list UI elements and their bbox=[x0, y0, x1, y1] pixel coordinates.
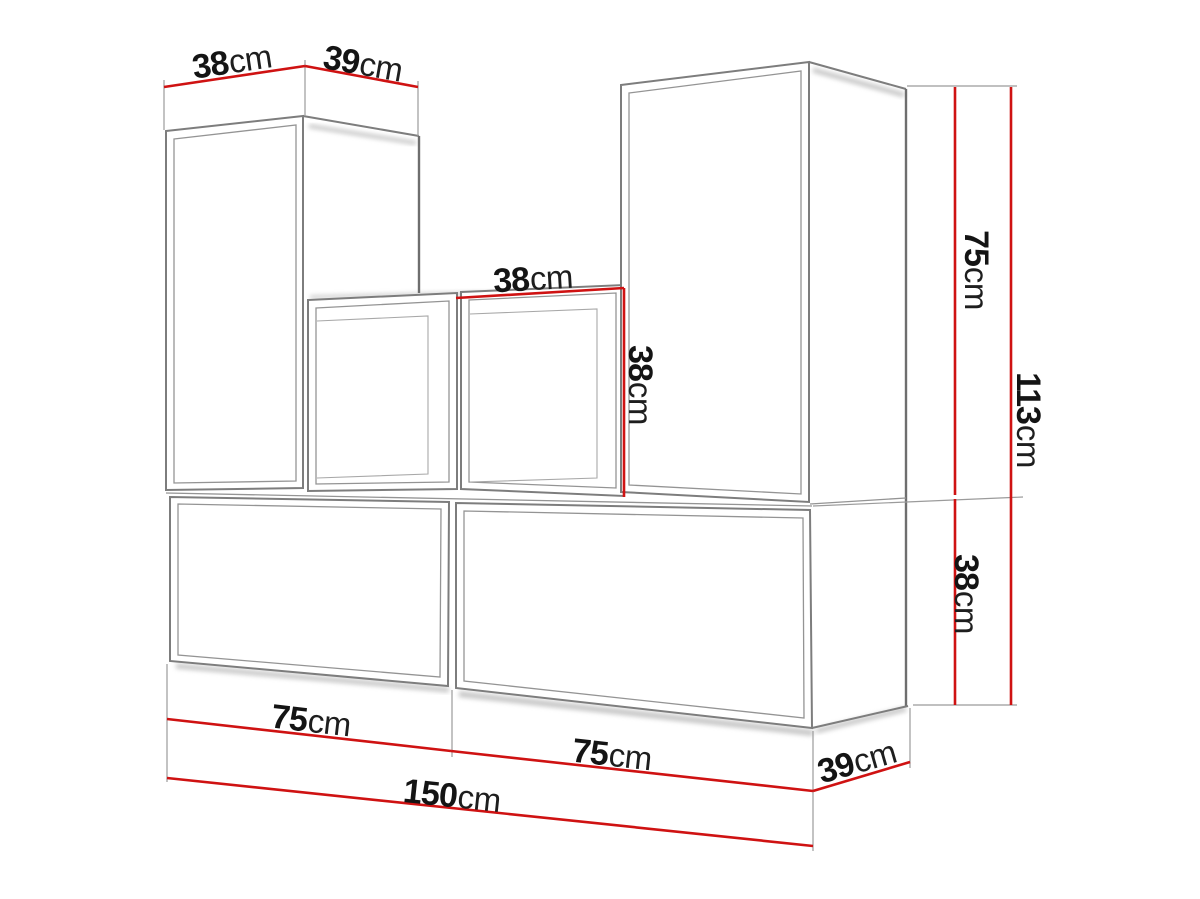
dim-label-base-right-width: 75cm bbox=[612, 755, 692, 789]
dim-value: 75 bbox=[269, 698, 309, 740]
shadow-base-side-bottom bbox=[816, 709, 906, 731]
dim-label-upper-right-height: 75cm bbox=[976, 270, 1056, 304]
dim-unit: cm bbox=[958, 267, 995, 310]
shadow-left-cabinet-top bbox=[309, 126, 416, 143]
right-cabinet-side-top-edge bbox=[809, 62, 906, 89]
dim-label-upper-left-depth: 39cm bbox=[363, 64, 443, 98]
right-cabinet-front bbox=[621, 62, 809, 502]
dim-unit: cm bbox=[1010, 425, 1047, 468]
dim-value: 113 bbox=[1009, 372, 1047, 424]
dim-unit: cm bbox=[622, 382, 659, 425]
dim-value: 150 bbox=[401, 772, 458, 815]
furniture-dimension-diagram: 38cm 39cm 38cm 38cm 75cm 113cm 38cm 75cm… bbox=[0, 0, 1200, 899]
dim-label-base-height: 38cm bbox=[966, 594, 1046, 628]
dim-unit: cm bbox=[456, 778, 503, 819]
dim-unit: cm bbox=[306, 702, 353, 744]
dim-value: 39 bbox=[320, 38, 362, 82]
dim-unit: cm bbox=[607, 736, 654, 777]
dim-label-total-height: 113cm bbox=[1028, 420, 1124, 454]
dim-unit: cm bbox=[948, 591, 985, 634]
dim-label-base-depth: 39cm bbox=[857, 762, 937, 796]
dim-value: 75 bbox=[957, 230, 995, 266]
dim-label-base-left-width: 75cm bbox=[311, 721, 391, 755]
base-right-cabinet-front bbox=[456, 503, 812, 728]
dim-value: 75 bbox=[570, 732, 610, 774]
cube-left-front bbox=[308, 293, 457, 491]
dim-value: 38 bbox=[621, 345, 659, 381]
dim-label-cube-width: 38cm bbox=[533, 279, 613, 313]
dim-unit: cm bbox=[226, 37, 274, 80]
cube-right-front bbox=[461, 285, 624, 496]
base-cabinet-row bbox=[166, 493, 908, 728]
left-cabinet-front bbox=[166, 116, 303, 490]
dim-unit: cm bbox=[529, 258, 574, 298]
dim-value: 38 bbox=[947, 554, 985, 590]
shadow-right-cabinet-top bbox=[813, 70, 904, 95]
dim-unit: cm bbox=[357, 45, 406, 89]
base-side-bottom-edge bbox=[812, 706, 908, 728]
dim-label-upper-left-width: 38cm bbox=[232, 62, 312, 96]
dim-value: 38 bbox=[492, 260, 530, 300]
dim-value: 38 bbox=[190, 44, 231, 87]
open-cube-shelves bbox=[308, 285, 624, 496]
dim-label-base-total-width: 150cm bbox=[452, 796, 550, 830]
dim-label-cube-height: 38cm bbox=[640, 385, 720, 419]
